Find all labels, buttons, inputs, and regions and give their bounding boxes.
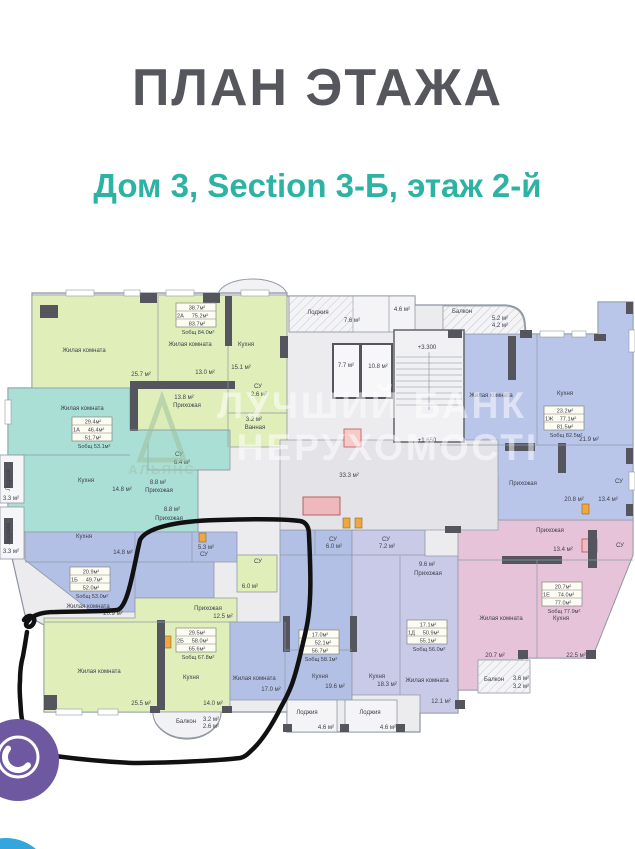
stat-living: 20.9м² <box>83 569 100 575</box>
info-box-1e: 20.7м² 1Е 74.0м² 77.0м² Sобщ 77.9м² <box>542 582 582 615</box>
area-label: 20.8 м² <box>564 497 583 503</box>
area-label: 13.8 м² <box>174 395 193 401</box>
stat-total: Sобщ 53.0м² <box>76 594 109 600</box>
area-label: 20.7 м² <box>485 653 504 659</box>
area-label: 7.2 м² <box>379 544 395 550</box>
area-label: 22.5 м² <box>566 653 585 659</box>
room-label: Прихожая <box>414 571 442 577</box>
info-box-1j: 23.2м² 1Ж 77.1м² 81.5м² Sобщ 82.5м² <box>544 406 584 439</box>
apartment-type: 2А <box>177 313 184 319</box>
stat-total: Sобщ 82.5м² <box>550 433 583 439</box>
area-label: 8.8 м² <box>164 507 180 513</box>
room-label: Балкон <box>176 719 196 725</box>
apartment-type: 1Ж <box>545 416 554 422</box>
room-label: СУ <box>382 537 390 543</box>
stat-area: 46.4м² <box>88 427 105 433</box>
room-label: Прихожая <box>509 481 537 487</box>
area-label: 3.6 м² <box>513 676 529 682</box>
area-label: 18.3 м² <box>377 682 396 688</box>
stat-living: 29.5м² <box>189 630 206 636</box>
watermark-line2: НЕРУХОМОСТІ <box>237 427 539 468</box>
room-label: Кухня <box>76 534 92 540</box>
viber-icon[interactable] <box>0 719 59 801</box>
stat-area2: 55.1м² <box>420 638 437 644</box>
area-label: 5.3 м² <box>198 545 214 551</box>
stat-area: 77.1м² <box>560 416 577 422</box>
apartment-type: 1А <box>73 427 80 433</box>
area-label: 9.6 м² <box>419 562 435 568</box>
room-label: Лоджия <box>296 710 317 716</box>
room-label: Кухня <box>312 674 328 680</box>
area-label: 17.0 м² <box>261 687 280 693</box>
area-label: 4.2 м² <box>492 323 508 329</box>
stat-area2: 81.5м² <box>557 424 574 430</box>
stat-area: 74.0м² <box>558 592 575 598</box>
room-label: Прихожая <box>145 488 173 494</box>
svg-text:АЛЬЯНС: АЛЬЯНС <box>128 462 196 477</box>
stat-living: 17.0м² <box>312 632 329 638</box>
room-label: Балкон <box>484 677 504 683</box>
area-label: 14.0 м² <box>203 701 222 707</box>
stat-area2: 77.0м² <box>555 600 572 606</box>
stat-area2: 65.6м² <box>189 646 206 652</box>
stat-total: Sобщ 58.1м² <box>305 657 338 663</box>
room-label: Жилая комната <box>232 676 276 682</box>
stat-area: 49.7м² <box>86 577 103 583</box>
room-label: Кухня <box>369 674 385 680</box>
stat-area2: 83.7м² <box>189 321 206 327</box>
area-label: 25.5 м² <box>131 701 150 707</box>
area-label: 3.3 м² <box>3 549 19 555</box>
floor-plan-page: ПЛАН ЭТАЖА Дом 3, Section 3-Б, этаж 2-й <box>0 0 635 849</box>
area-label: 33.3 м² <box>339 473 358 479</box>
area-label: 3.3 м² <box>3 496 19 502</box>
stat-living: 29.4м² <box>85 419 102 425</box>
area-label: 25.7 м² <box>131 372 150 378</box>
stat-area: 52.1м² <box>315 640 332 646</box>
area-label: 5.2 м² <box>492 316 508 322</box>
area-label: 8.8 м² <box>150 480 166 486</box>
floor-plan-drawing: Жилая комната 25.7 м² Жилая комната 13.0… <box>0 0 635 849</box>
area-label: 13.0 м² <box>195 370 214 376</box>
watermark-line1: ЛУЧШИЙ БАНК <box>217 384 527 426</box>
room-label: СУ <box>616 543 624 549</box>
area-label: 19.6 м² <box>325 684 344 690</box>
elevation-mark: +3.300 <box>418 345 437 351</box>
stat-total: Sобщ 53.1м² <box>78 444 111 450</box>
room-label: СУ <box>200 552 208 558</box>
area-label: 3.2 м² <box>203 717 219 723</box>
area-label: 6.0 м² <box>242 584 258 590</box>
room-label: Кухня <box>238 342 254 348</box>
room-label: Жилая комната <box>405 678 449 684</box>
apartment-type: 1Д <box>408 630 415 636</box>
room-label: Жилая комната <box>62 348 106 354</box>
area-label: 13.4 м² <box>598 497 617 503</box>
room-label: Кухня <box>78 478 94 484</box>
area-label: 7.6 м² <box>344 318 360 324</box>
stat-total: Sобщ 77.9м² <box>548 609 581 615</box>
info-box-2b: 29.5м² 2Б 58.0м² 65.6м² Sобщ 67.8м² <box>176 628 216 661</box>
apartment-type: 1Е <box>543 592 550 598</box>
room-label: Лоджия <box>307 310 328 316</box>
area-label: 2.6 м² <box>203 724 219 730</box>
room-label: Балкон <box>452 309 472 315</box>
area-label: 4.6 м² <box>318 725 334 731</box>
info-box-1a: 29.4м² 1А 46.4м² 51.7м² Sобщ 53.1м² <box>72 417 112 450</box>
area-label: 14.8 м² <box>113 550 132 556</box>
area-label: 4.6 м² <box>380 725 396 731</box>
room-label: Жилая комната <box>60 406 104 412</box>
room-label: Лоджия <box>359 710 380 716</box>
area-label: 3.2 м² <box>513 684 529 690</box>
info-box-1b: 20.9м² 1Б 49.7м² 52.0м² Sобщ 53.0м² <box>70 567 110 600</box>
stat-total: Sобщ 84.0м² <box>182 330 215 336</box>
area-label: 15.1 м² <box>231 365 250 371</box>
info-box-1d: 17.1м² 1Д 50.9м² 55.1м² Sобщ 56.0м² <box>407 620 447 653</box>
area-label: 12.5 м² <box>213 614 232 620</box>
stat-total: Sобщ 67.8м² <box>182 655 215 661</box>
room-label: СУ <box>615 479 623 485</box>
room-label: Жилая комната <box>479 616 523 622</box>
room-label: Прихожая <box>536 528 564 534</box>
area-label: 12.1 м² <box>431 699 450 705</box>
stat-area: 75.2м² <box>192 313 209 319</box>
room-label: Лоджия <box>6 469 12 490</box>
area-label: 14.8 м² <box>112 487 131 493</box>
room-label: Лоджия <box>6 523 12 544</box>
stat-living: 38.7м² <box>189 305 206 311</box>
stat-living: 23.2м² <box>557 408 574 414</box>
stat-area2: 56.7м² <box>312 648 329 654</box>
area-label: 13.4 м² <box>553 547 572 553</box>
stat-living: 17.1м² <box>420 622 437 628</box>
stat-area2: 52.0м² <box>83 585 100 591</box>
stat-living: 20.7м² <box>555 584 572 590</box>
room-label: Кухня <box>557 391 573 397</box>
area-label: 7.7 м² <box>338 363 354 369</box>
apartment-type: 1Б <box>71 577 78 583</box>
room-label: СУ <box>254 559 262 565</box>
room-label: СУ <box>329 537 337 543</box>
stat-total: Sобщ 56.0м² <box>413 647 446 653</box>
stat-area: 50.9м² <box>423 630 440 636</box>
room-label: Жилая комната <box>77 669 121 675</box>
room-label: Кухня <box>183 675 199 681</box>
room-label: Жилая комната <box>168 342 212 348</box>
stat-area2: 51.7м² <box>85 435 102 441</box>
elevator-lobby-marker <box>303 497 340 515</box>
telegram-icon[interactable] <box>0 838 52 849</box>
area-label: 10.8 м² <box>368 364 387 370</box>
area-label: 4.6 м² <box>394 307 410 313</box>
stat-area: 58.0м² <box>192 638 209 644</box>
info-box-2a: 38.7м² 2А 75.2м² 83.7м² Sобщ 84.0м² <box>176 303 216 336</box>
room-label: Прихожая <box>173 403 201 409</box>
apartment-type: 2Б <box>177 638 184 644</box>
area-label: 6.0 м² <box>326 544 342 550</box>
room-label: Кухня <box>553 616 569 622</box>
room-label: Прихожая <box>194 606 222 612</box>
